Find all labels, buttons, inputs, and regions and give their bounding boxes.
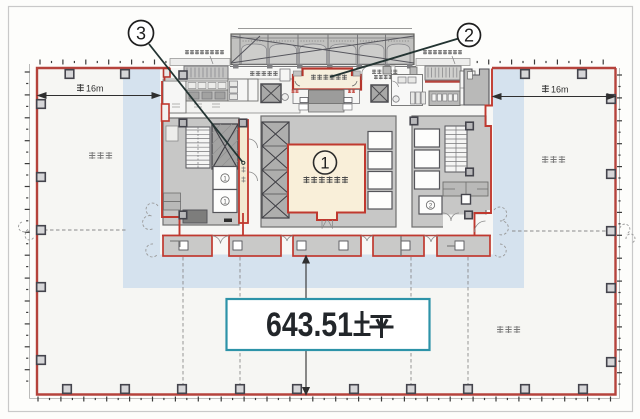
svg-text:2: 2 (464, 26, 474, 46)
svg-text:16m: 16m (86, 84, 104, 94)
svg-text:643.51: 643.51 (266, 306, 353, 344)
svg-text:1: 1 (320, 155, 329, 173)
svg-text:3: 3 (136, 24, 146, 44)
svg-text:16m: 16m (551, 85, 569, 95)
